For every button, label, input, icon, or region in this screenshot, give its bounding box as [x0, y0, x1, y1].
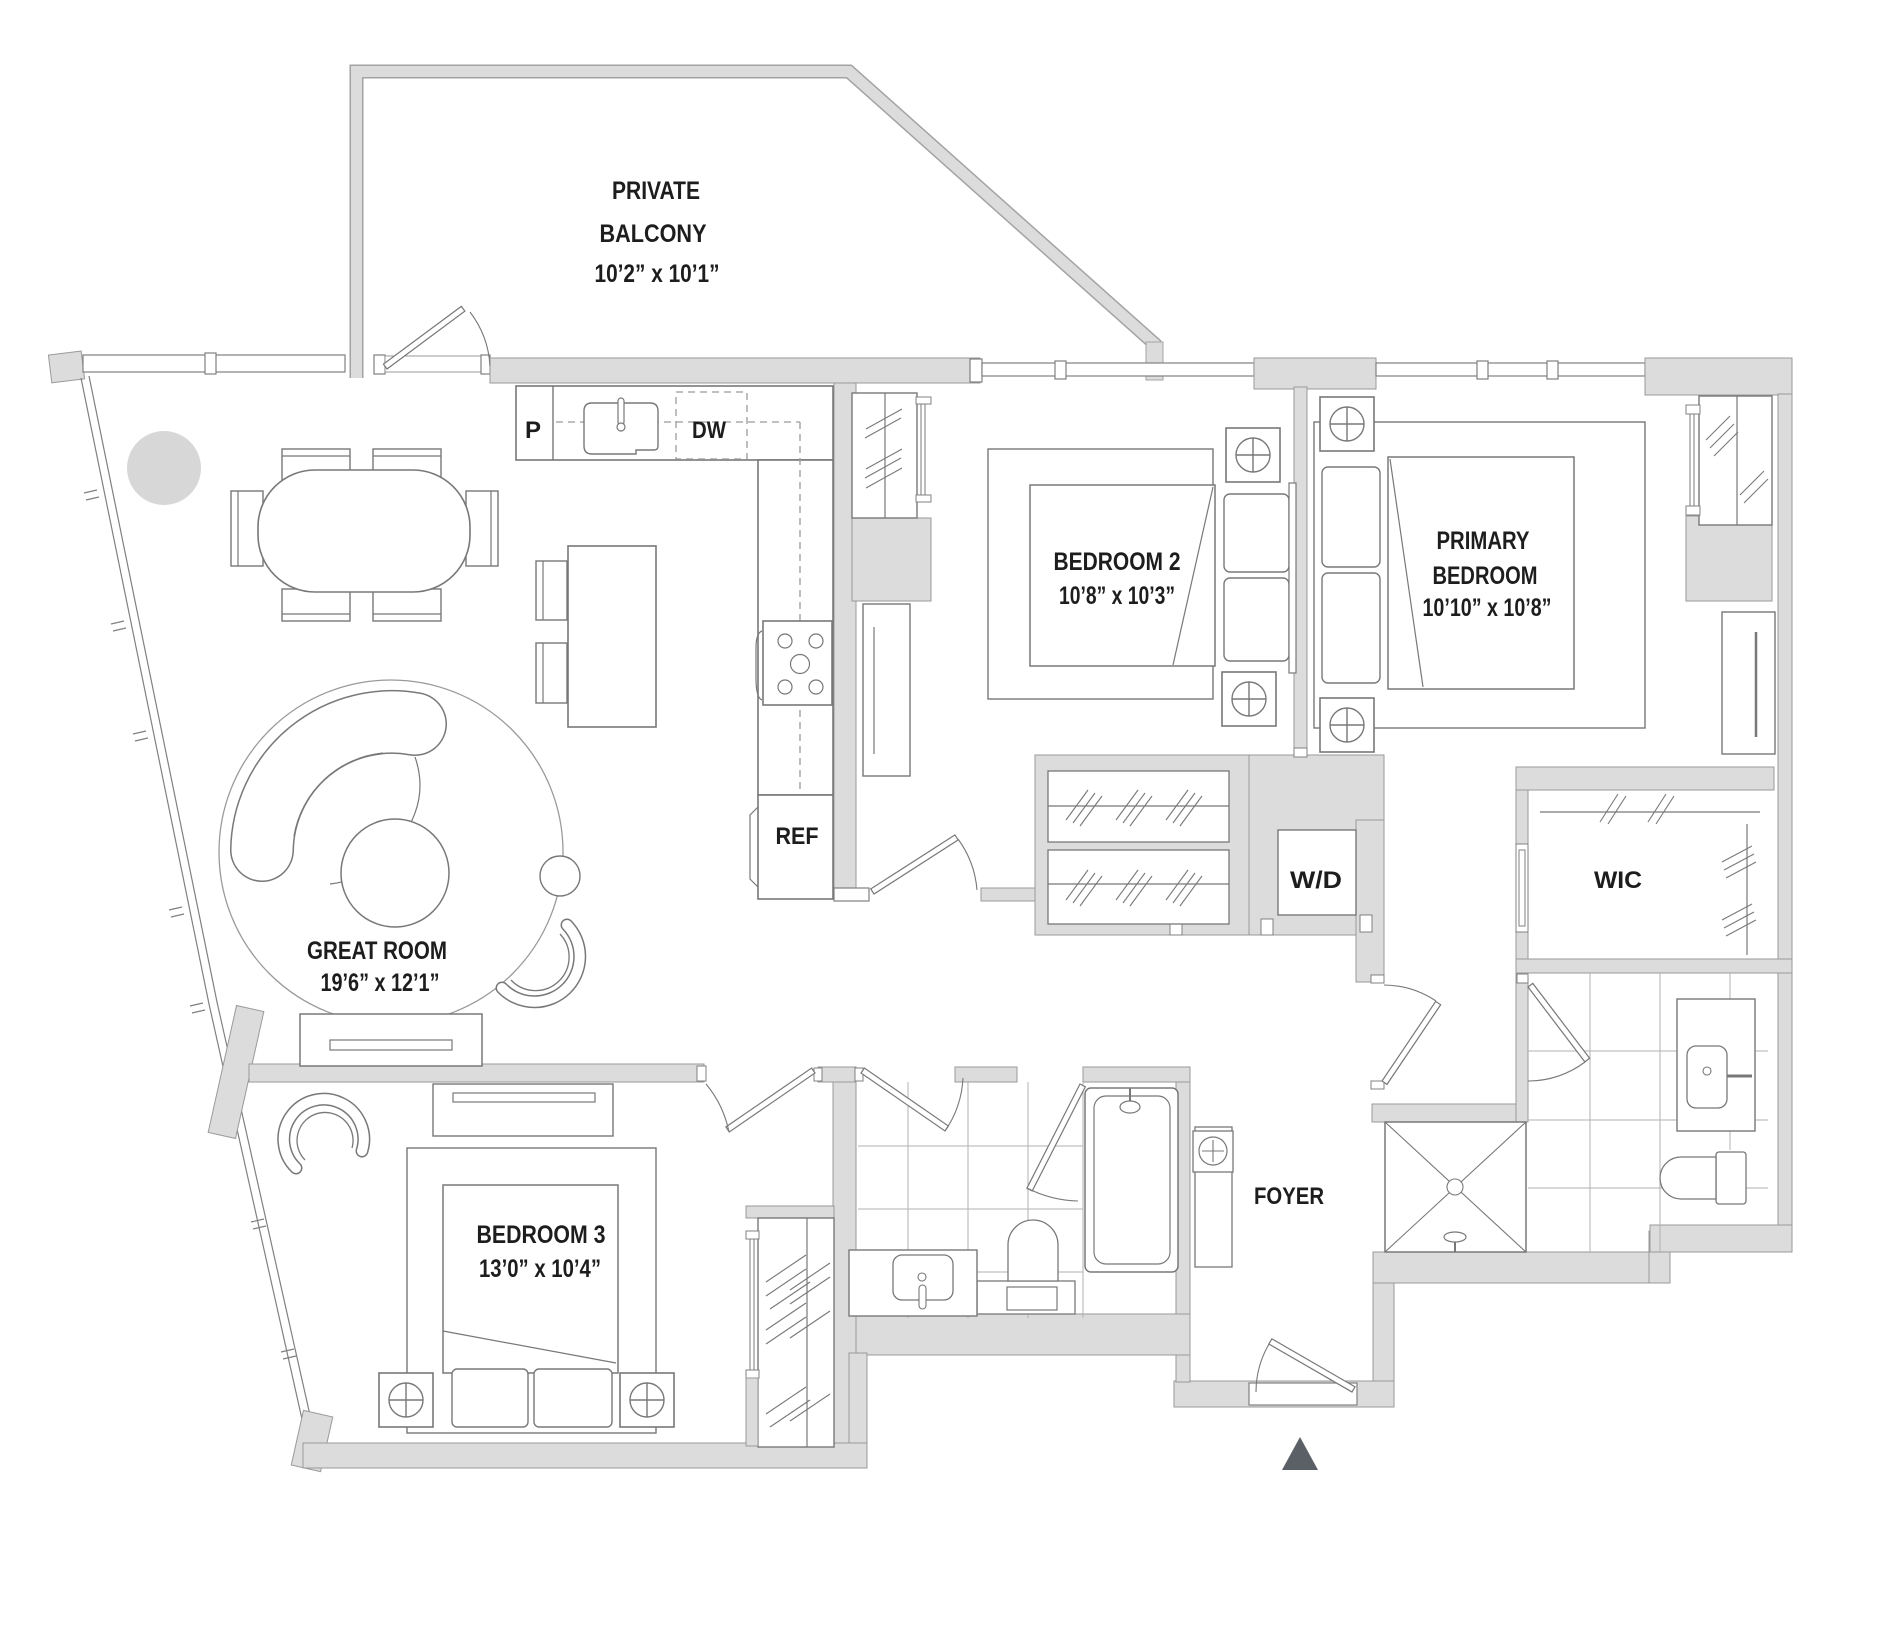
svg-text:BEDROOM 2: BEDROOM 2: [1054, 548, 1181, 576]
svg-text:REF: REF: [776, 823, 819, 850]
svg-text:BEDROOM: BEDROOM: [1433, 562, 1538, 590]
svg-text:PRIVATE: PRIVATE: [612, 177, 700, 205]
svg-text:FOYER: FOYER: [1254, 1183, 1324, 1210]
svg-text:DW: DW: [692, 417, 726, 444]
svg-text:WIC: WIC: [1594, 867, 1642, 894]
svg-text:GREAT ROOM: GREAT ROOM: [307, 937, 447, 965]
svg-text:13’0” x 10’4”: 13’0” x 10’4”: [479, 1255, 601, 1283]
svg-text:BEDROOM 3: BEDROOM 3: [477, 1221, 606, 1249]
svg-text:10’10” x 10’8”: 10’10” x 10’8”: [1423, 594, 1552, 622]
svg-text:PRIMARY: PRIMARY: [1437, 527, 1530, 555]
svg-text:19’6” x 12’1”: 19’6” x 12’1”: [321, 969, 440, 997]
svg-text:BALCONY: BALCONY: [600, 220, 707, 248]
svg-text:10’8” x 10’3”: 10’8” x 10’3”: [1059, 582, 1175, 610]
svg-text:10’2” x 10’1”: 10’2” x 10’1”: [595, 260, 720, 288]
svg-text:P: P: [525, 417, 541, 444]
svg-text:W/D: W/D: [1290, 867, 1342, 894]
